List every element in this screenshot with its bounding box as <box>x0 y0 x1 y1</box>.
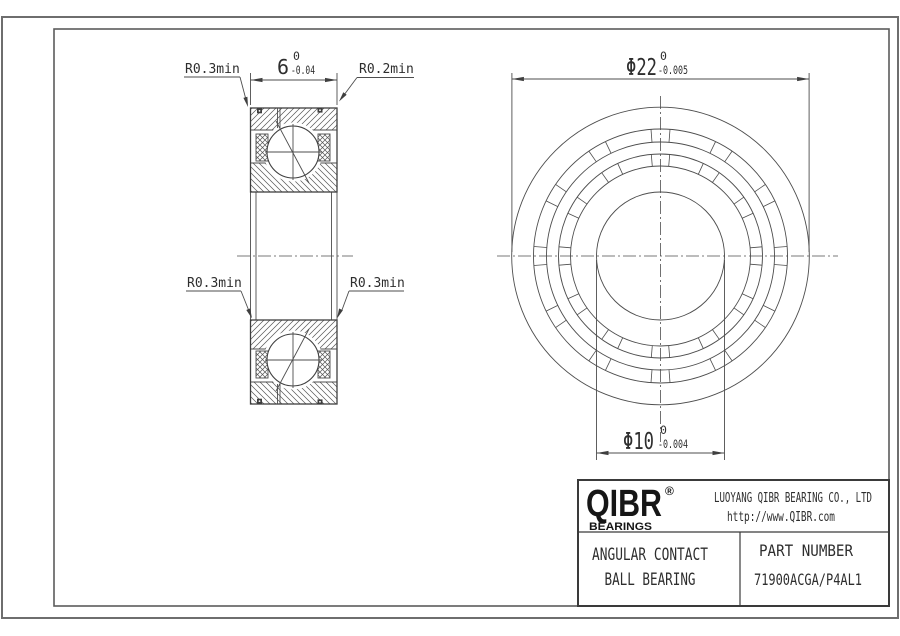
bore-dim-text: Φ10 <box>623 429 654 455</box>
bore-tol-lower: -0.004 <box>658 437 688 451</box>
radius-label-top-left: R0.3min <box>185 62 240 77</box>
bore-tol-upper: 0 <box>660 423 667 437</box>
part-number-value: 71900ACGA/P4AL1 <box>754 570 862 589</box>
outer-page-border <box>2 17 898 618</box>
od-tol-lower: -0.005 <box>658 63 688 77</box>
radius-label-bottom-right: R0.3min <box>350 276 405 291</box>
front-view: Φ22 0 -0.005 Φ10 0 -0.004 <box>497 49 838 460</box>
engineering-drawing-page: Φ22 0 -0.005 Φ10 0 -0.004 <box>0 0 900 636</box>
radius-label-bottom-left: R0.3min <box>187 276 242 291</box>
radius-label-top-right: R0.2min <box>359 62 414 77</box>
width-tol-lower: -0.04 <box>291 63 315 77</box>
od-tol-upper: 0 <box>660 49 667 63</box>
cage-section-left <box>256 134 268 161</box>
width-tol-upper: 0 <box>293 49 300 63</box>
top-half-section <box>251 108 338 192</box>
company-logo: QIBR <box>586 483 662 525</box>
title-block: QIBR ® BEARINGS LUOYANG QIBR BEARING CO.… <box>578 480 889 606</box>
width-dim-text: 6 <box>277 55 289 79</box>
drawing-canvas: Φ22 0 -0.005 Φ10 0 -0.004 <box>0 0 900 636</box>
company-website: http://www.QIBR.com <box>727 510 835 525</box>
cage-section-right <box>318 134 330 161</box>
part-number-label: PART NUMBER <box>759 541 853 560</box>
width-dimension: 6 0 -0.04 <box>251 49 338 105</box>
company-name: LUOYANG QIBR BEARING CO., LTD <box>714 491 872 506</box>
product-type-line1: ANGULAR CONTACT <box>592 545 708 564</box>
registered-trademark-symbol: ® <box>665 484 674 498</box>
bottom-half-section <box>251 320 338 404</box>
section-view: 6 0 -0.04 R0.3min R0.2min R0.3min R0.3mi… <box>184 49 414 404</box>
od-dim-text: Φ22 <box>626 55 657 81</box>
logo-subtitle: BEARINGS <box>589 521 652 533</box>
product-type-line2: BALL BEARING <box>605 570 696 589</box>
